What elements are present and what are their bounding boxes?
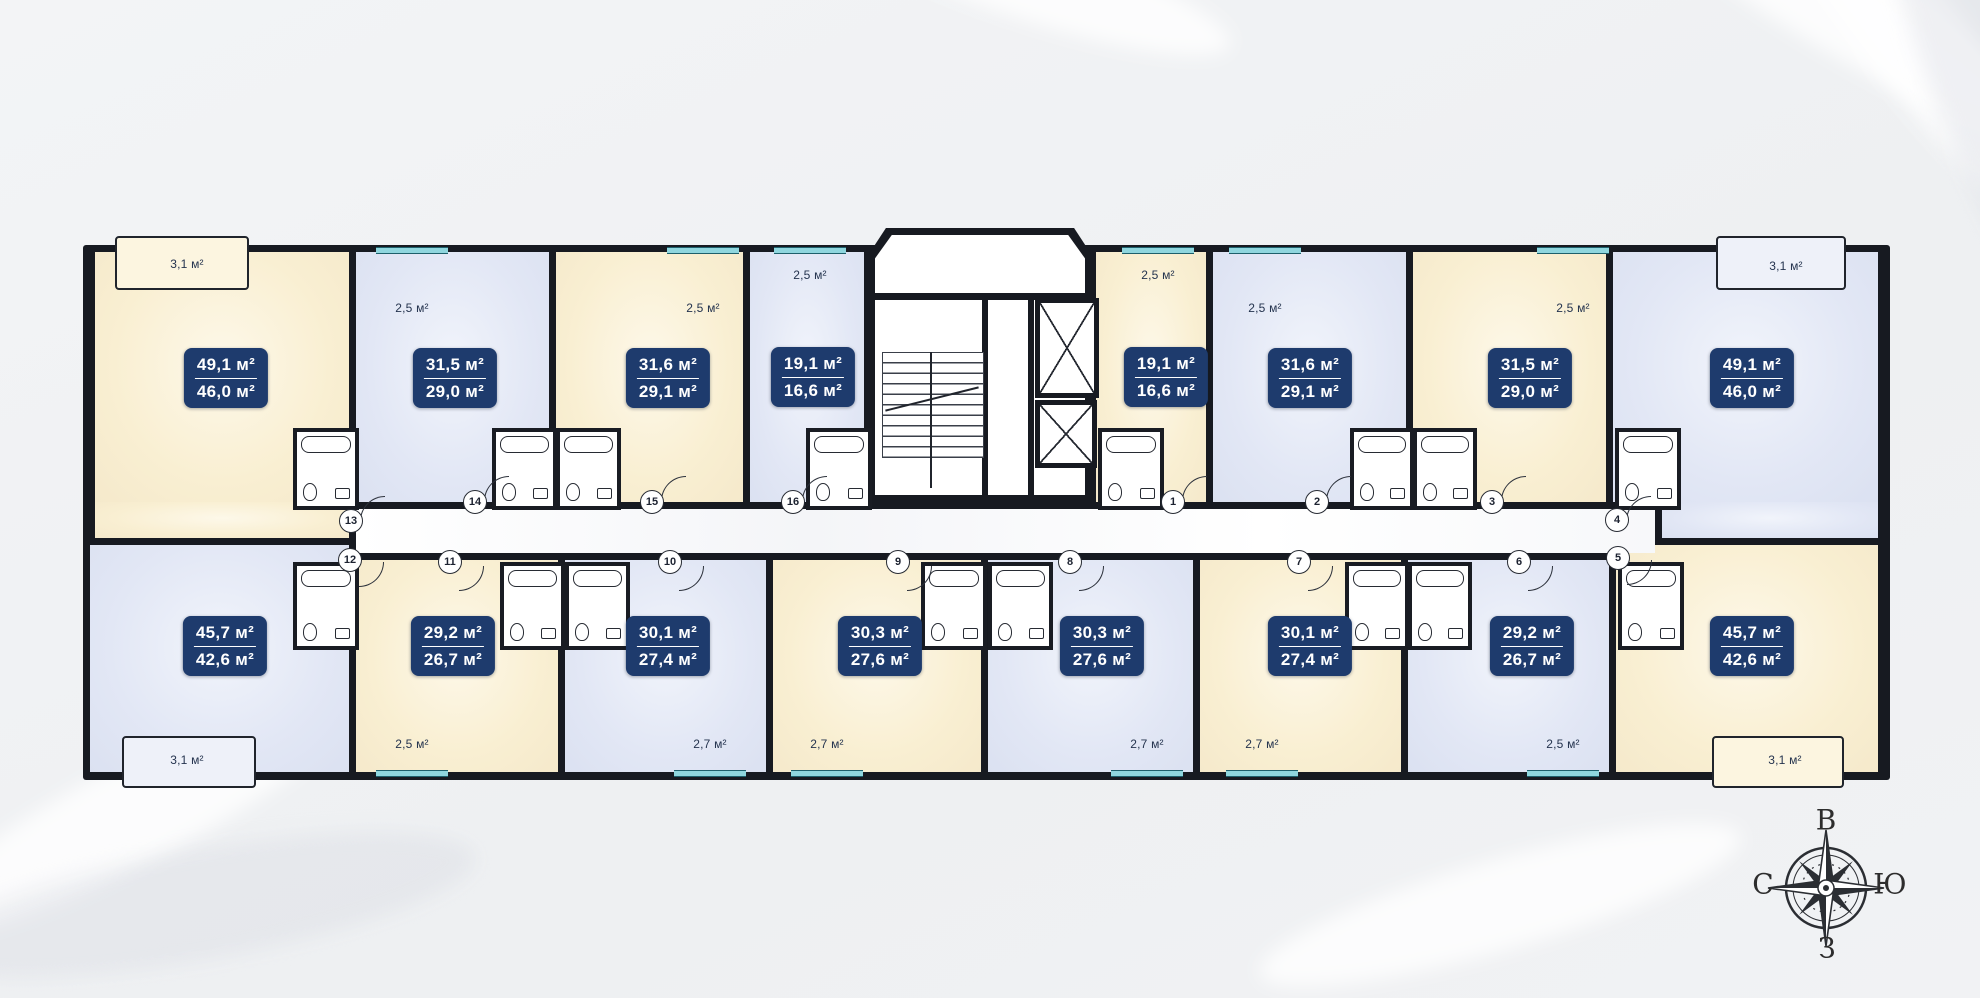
bathroom bbox=[1413, 428, 1477, 510]
area-living: 27,6 м² bbox=[1071, 647, 1133, 670]
staircase-divider bbox=[930, 352, 932, 488]
bathroom bbox=[921, 562, 987, 650]
compass-label-north: С bbox=[1752, 868, 1773, 901]
staircase-icon bbox=[882, 352, 984, 458]
leaf-decoration bbox=[1247, 793, 1752, 998]
apartment-number[interactable]: 7 bbox=[1287, 550, 1311, 574]
compass-label-west: З bbox=[1818, 932, 1835, 965]
area-living: 46,0 м² bbox=[1721, 379, 1783, 402]
area-badge[interactable]: 29,2 м²26,7 м² bbox=[411, 616, 495, 676]
window bbox=[1226, 770, 1298, 777]
area-badge[interactable]: 30,1 м²27,4 м² bbox=[1268, 616, 1352, 676]
bathroom bbox=[556, 428, 621, 510]
area-total: 45,7 м² bbox=[1721, 623, 1783, 647]
area-total: 19,1 м² bbox=[782, 354, 844, 378]
sink-icon bbox=[541, 628, 556, 639]
window bbox=[791, 770, 863, 777]
compass-label-south: Ю bbox=[1873, 868, 1906, 901]
area-living: 46,0 м² bbox=[195, 379, 257, 402]
apartment-number[interactable]: 5 bbox=[1606, 546, 1630, 570]
apartment-number[interactable]: 2 bbox=[1305, 490, 1329, 514]
window bbox=[1537, 247, 1609, 254]
apartment-number[interactable]: 3 bbox=[1480, 490, 1504, 514]
area-badge[interactable]: 30,3 м²27,6 м² bbox=[1060, 616, 1144, 676]
window bbox=[376, 770, 448, 777]
balcony-area-label: 2,5 м² bbox=[1141, 268, 1174, 282]
apartment-number[interactable]: 8 bbox=[1058, 550, 1082, 574]
balcony-area-label: 3,1 м² bbox=[170, 257, 203, 271]
area-living: 27,4 м² bbox=[637, 647, 699, 670]
bathroom bbox=[1350, 428, 1414, 510]
apartment-4-hall bbox=[1662, 502, 1878, 538]
apartment-number[interactable]: 6 bbox=[1507, 550, 1531, 574]
area-living: 27,4 м² bbox=[1279, 647, 1341, 670]
area-total: 30,3 м² bbox=[1071, 623, 1133, 647]
area-badge[interactable]: 49,1 м²46,0 м² bbox=[1710, 348, 1794, 408]
sink-icon bbox=[1385, 628, 1400, 639]
apartment-number[interactable]: 12 bbox=[338, 548, 362, 572]
area-living: 26,7 м² bbox=[1501, 647, 1563, 670]
apartment-number[interactable]: 4 bbox=[1605, 508, 1629, 532]
window bbox=[1111, 770, 1183, 777]
area-total: 31,5 м² bbox=[1499, 355, 1561, 379]
area-badge[interactable]: 31,6 м²29,1 м² bbox=[1268, 348, 1352, 408]
area-living: 29,1 м² bbox=[1279, 379, 1341, 402]
area-badge[interactable]: 31,5 м²29,0 м² bbox=[1488, 348, 1572, 408]
leaf-decoration bbox=[818, 0, 1242, 83]
sink-icon bbox=[848, 488, 863, 499]
apartment-number[interactable]: 11 bbox=[438, 550, 462, 574]
balcony-area-label: 2,7 м² bbox=[1245, 737, 1278, 751]
balcony-area-label: 2,5 м² bbox=[395, 301, 428, 315]
apartment-number[interactable]: 14 bbox=[463, 490, 487, 514]
area-total: 31,5 м² bbox=[424, 355, 486, 379]
sink-icon bbox=[1660, 628, 1675, 639]
balcony-area-label: 3,1 м² bbox=[1769, 259, 1802, 273]
window bbox=[774, 247, 846, 254]
apartment-number[interactable]: 10 bbox=[658, 550, 682, 574]
sink-icon bbox=[963, 628, 978, 639]
bathroom bbox=[1408, 562, 1472, 650]
area-living: 42,6 м² bbox=[1721, 647, 1783, 670]
balcony-area-label: 3,1 м² bbox=[1768, 753, 1801, 767]
compass-label-east: В bbox=[1816, 804, 1837, 837]
bathroom bbox=[1098, 428, 1164, 510]
sink-icon bbox=[1140, 488, 1155, 499]
window bbox=[667, 247, 739, 254]
area-total: 49,1 м² bbox=[195, 355, 257, 379]
sink-icon bbox=[335, 628, 350, 639]
sink-icon bbox=[597, 488, 612, 499]
window bbox=[1229, 247, 1301, 254]
elevator-icon bbox=[1035, 298, 1099, 398]
bathroom bbox=[1345, 562, 1409, 650]
apartment-number[interactable]: 16 bbox=[781, 490, 805, 514]
area-total: 29,2 м² bbox=[1501, 623, 1563, 647]
area-badge[interactable]: 19,1 м²16,6 м² bbox=[771, 347, 855, 407]
core-wall bbox=[1028, 300, 1034, 495]
bathroom bbox=[293, 562, 359, 650]
bathroom bbox=[565, 562, 630, 650]
area-living: 16,6 м² bbox=[1135, 378, 1197, 401]
balcony-area-label: 2,7 м² bbox=[1130, 737, 1163, 751]
sink-icon bbox=[1029, 628, 1044, 639]
sink-icon bbox=[1448, 628, 1463, 639]
balcony-area-label: 2,7 м² bbox=[693, 737, 726, 751]
corridor bbox=[356, 509, 1655, 553]
window bbox=[376, 247, 448, 254]
area-total: 19,1 м² bbox=[1135, 354, 1197, 378]
area-badge[interactable]: 45,7 м²42,6 м² bbox=[1710, 616, 1794, 676]
sink-icon bbox=[335, 488, 350, 499]
apartment-number[interactable]: 1 bbox=[1161, 490, 1185, 514]
area-total: 30,1 м² bbox=[637, 623, 699, 647]
window bbox=[1527, 770, 1599, 777]
bathroom bbox=[293, 428, 359, 510]
window bbox=[1122, 247, 1194, 254]
area-living: 27,6 м² bbox=[849, 647, 911, 670]
area-living: 29,0 м² bbox=[1499, 379, 1561, 402]
sink-icon bbox=[1453, 488, 1468, 499]
area-badge[interactable]: 19,1 м²16,6 м² bbox=[1124, 347, 1208, 407]
area-badge[interactable]: 49,1 м²46,0 м² bbox=[184, 348, 268, 408]
area-total: 30,3 м² bbox=[849, 623, 911, 647]
area-living: 26,7 м² bbox=[422, 647, 484, 670]
area-living: 29,0 м² bbox=[424, 379, 486, 402]
area-total: 45,7 м² bbox=[194, 623, 256, 647]
area-total: 49,1 м² bbox=[1721, 355, 1783, 379]
area-living: 29,1 м² bbox=[637, 379, 699, 402]
window bbox=[674, 770, 746, 777]
leaf-decoration bbox=[1576, 0, 1980, 171]
apartment-number[interactable]: 13 bbox=[339, 509, 363, 533]
area-badge[interactable]: 31,5 м²29,0 м² bbox=[413, 348, 497, 408]
area-badge[interactable]: 30,1 м²27,4 м² bbox=[626, 616, 710, 676]
balcony-area-label: 2,5 м² bbox=[793, 268, 826, 282]
area-badge[interactable]: 30,3 м²27,6 м² bbox=[838, 616, 922, 676]
area-total: 31,6 м² bbox=[1279, 355, 1341, 379]
area-living: 42,6 м² bbox=[194, 647, 256, 670]
balcony-area-label: 2,7 м² bbox=[810, 737, 843, 751]
bathroom bbox=[988, 562, 1053, 650]
sink-icon bbox=[606, 628, 621, 639]
bathroom bbox=[500, 562, 565, 650]
area-badge[interactable]: 29,2 м²26,7 м² bbox=[1490, 616, 1574, 676]
balcony-area-label: 2,5 м² bbox=[1556, 301, 1589, 315]
sink-icon bbox=[1390, 488, 1405, 499]
floor-plan-canvas: 49,1 м²46,0 м² 31,5 м²29,0 м² 31,6 м²29,… bbox=[0, 0, 1980, 998]
apartment-number[interactable]: 9 bbox=[886, 550, 910, 574]
balcony-area-label: 2,5 м² bbox=[1248, 301, 1281, 315]
area-living: 16,6 м² bbox=[782, 378, 844, 401]
sink-icon bbox=[1657, 488, 1672, 499]
area-badge[interactable]: 31,6 м²29,1 м² bbox=[626, 348, 710, 408]
area-badge[interactable]: 45,7 м²42,6 м² bbox=[183, 616, 267, 676]
sink-icon bbox=[533, 488, 548, 499]
leaf-decoration bbox=[0, 802, 485, 998]
balcony-area-label: 2,5 м² bbox=[686, 301, 719, 315]
area-total: 31,6 м² bbox=[637, 355, 699, 379]
balcony-area-label: 3,1 м² bbox=[170, 753, 203, 767]
area-total: 30,1 м² bbox=[1279, 623, 1341, 647]
apartment-number[interactable]: 15 bbox=[640, 490, 664, 514]
balcony-area-label: 2,5 м² bbox=[395, 737, 428, 751]
balcony-area-label: 2,5 м² bbox=[1546, 737, 1579, 751]
area-total: 29,2 м² bbox=[422, 623, 484, 647]
elevator-icon bbox=[1035, 400, 1097, 468]
